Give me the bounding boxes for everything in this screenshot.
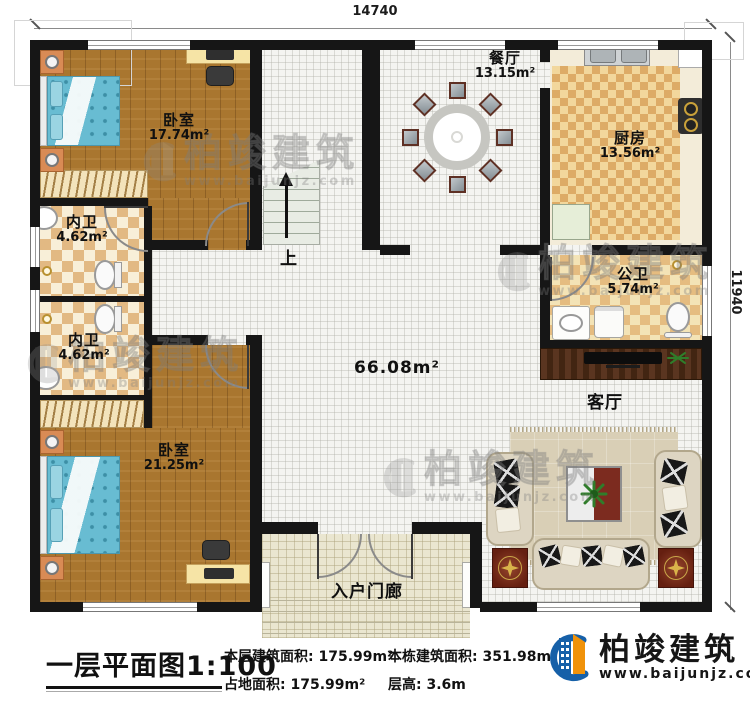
carpet-fringe bbox=[510, 427, 678, 432]
brand-name: 柏竣建筑 bbox=[599, 634, 750, 667]
nightstand bbox=[40, 556, 64, 580]
window bbox=[537, 602, 640, 612]
porch-step bbox=[262, 633, 470, 634]
stat-story-height: 层高: 3.6m bbox=[388, 674, 466, 694]
decor-plant-icon bbox=[666, 350, 690, 366]
sofa-cushion bbox=[661, 484, 688, 511]
wardrobe-bedroom1 bbox=[40, 170, 148, 198]
computer-icon bbox=[204, 568, 234, 579]
wall-segment bbox=[540, 88, 550, 245]
toilet-tank bbox=[114, 262, 122, 288]
shower-knob bbox=[42, 266, 52, 276]
wall-segment bbox=[412, 522, 482, 534]
label-public-bath: 公卫5.74m² bbox=[592, 266, 674, 298]
fridge bbox=[552, 204, 590, 240]
label-bedroom1: 卧室17.74m² bbox=[133, 112, 225, 144]
porch-step bbox=[262, 622, 470, 623]
bed-pillow bbox=[50, 81, 63, 107]
bed-pillow bbox=[50, 465, 63, 499]
wall-segment bbox=[380, 245, 410, 255]
wall-segment bbox=[40, 296, 144, 302]
tv bbox=[584, 352, 662, 364]
bed-headboard bbox=[40, 456, 47, 554]
door-leaf bbox=[317, 534, 319, 579]
toilet bbox=[666, 302, 690, 332]
tv-stand bbox=[606, 365, 640, 368]
bed-pillow bbox=[50, 114, 63, 140]
dimension-right: 11940 bbox=[728, 262, 743, 322]
shower-knob bbox=[42, 314, 52, 324]
laptop-icon bbox=[206, 49, 234, 60]
brand-logo-icon bbox=[543, 630, 591, 686]
label-hall-area: 66.08m² bbox=[352, 358, 442, 378]
porch-step bbox=[262, 611, 470, 612]
nightstand bbox=[40, 148, 64, 172]
plant-icon bbox=[580, 480, 608, 508]
washing-machine bbox=[594, 306, 624, 338]
plan-title-text: 一层平面图 bbox=[46, 651, 186, 682]
label-kitchen: 厨房13.56m² bbox=[588, 130, 672, 162]
toilet bbox=[94, 260, 116, 290]
door-leaf bbox=[247, 202, 249, 246]
wall-segment bbox=[250, 335, 262, 602]
nightstand bbox=[40, 50, 64, 74]
wall-segment bbox=[250, 40, 262, 250]
wall-segment bbox=[592, 245, 712, 255]
dining-table-center bbox=[451, 131, 463, 143]
window bbox=[702, 266, 712, 336]
vanity-counter bbox=[552, 306, 590, 340]
dimension-top: 14740 bbox=[335, 4, 415, 19]
desk-chair bbox=[206, 66, 234, 86]
title-underline-thin bbox=[46, 691, 222, 692]
dimension-line-right bbox=[730, 42, 731, 610]
label-porch: 入户门廊 bbox=[318, 577, 416, 602]
wall-segment bbox=[148, 335, 208, 345]
label-bath2: 内卫4.62m² bbox=[46, 332, 122, 364]
floorplan-canvas: 柏竣建筑www.baijunjz.com 柏竣建筑www.baijunjz.co… bbox=[0, 0, 750, 707]
toilet bbox=[94, 304, 116, 334]
sofa-cushion bbox=[493, 482, 520, 509]
sofa-cushion bbox=[660, 510, 688, 538]
title-underline bbox=[46, 686, 222, 689]
window bbox=[558, 40, 658, 50]
desk-chair bbox=[202, 540, 230, 560]
sofa-pillow bbox=[560, 545, 583, 568]
sofa-cushion bbox=[660, 458, 688, 486]
sofa-cushion bbox=[495, 507, 521, 533]
toilet-tank bbox=[664, 332, 692, 338]
label-stairs-up: 上 bbox=[277, 244, 301, 269]
dining-chair bbox=[496, 129, 513, 146]
dining-chair bbox=[449, 176, 466, 193]
dining-chair bbox=[402, 129, 419, 146]
stat-building-area: 本栋建筑面积: 351.98m² bbox=[388, 646, 557, 666]
toilet-tank bbox=[114, 306, 122, 332]
window bbox=[30, 227, 40, 267]
door-leaf bbox=[411, 534, 413, 579]
wall-segment bbox=[262, 522, 318, 534]
bed-bedroom1 bbox=[40, 76, 120, 146]
wall-segment bbox=[540, 245, 548, 255]
stairs-up-arrow bbox=[285, 184, 288, 238]
label-bedroom2: 卧室21.25m² bbox=[128, 442, 220, 474]
sofa-pillow bbox=[601, 544, 625, 568]
door-leaf bbox=[550, 257, 552, 301]
stat-floor-area: 本层建筑面积: 175.99m² bbox=[224, 646, 393, 666]
wall-segment bbox=[470, 522, 482, 608]
wall-segment bbox=[500, 245, 540, 255]
dining-chair bbox=[449, 82, 466, 99]
wardrobe-bedroom2 bbox=[40, 400, 144, 428]
wall-segment bbox=[30, 198, 148, 206]
sofa-pillow bbox=[622, 544, 645, 567]
bed-headboard bbox=[40, 76, 47, 146]
sofa-cushion bbox=[493, 458, 521, 486]
bed-pillow bbox=[50, 508, 63, 542]
window bbox=[88, 40, 190, 50]
wall-segment bbox=[148, 240, 208, 250]
label-bath1: 内卫4.62m² bbox=[44, 214, 120, 246]
wall-segment bbox=[40, 395, 144, 400]
wall-segment bbox=[362, 40, 380, 250]
wall-segment bbox=[540, 255, 550, 340]
stairs-up-arrowhead bbox=[279, 172, 293, 186]
window bbox=[83, 602, 197, 612]
stove bbox=[678, 98, 704, 134]
brand-logo: 柏竣建筑 www.baijunjz.com bbox=[543, 630, 750, 686]
sofa-pillow bbox=[581, 545, 603, 567]
stat-footprint-area: 占地面积: 175.99m² bbox=[224, 674, 365, 694]
label-living: 客厅 bbox=[573, 388, 637, 413]
window bbox=[30, 290, 40, 332]
wall-segment bbox=[540, 340, 712, 348]
brand-website: www.baijunjz.com bbox=[599, 666, 750, 682]
label-dining: 餐厅13.15m² bbox=[466, 50, 544, 82]
bed-bedroom2 bbox=[40, 456, 120, 554]
dimension-line-top bbox=[34, 28, 712, 29]
door-leaf bbox=[247, 345, 249, 389]
door-leaf bbox=[104, 206, 148, 208]
nightstand bbox=[40, 430, 64, 454]
